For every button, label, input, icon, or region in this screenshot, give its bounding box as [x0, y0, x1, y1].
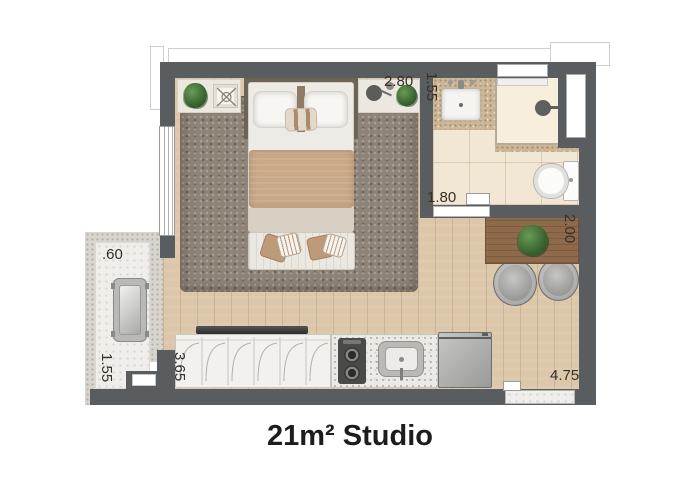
- bathroom-faucet-icon: [458, 80, 464, 89]
- dim-bathroom-width: 1.55: [423, 72, 439, 101]
- refrigerator-door-line: [439, 337, 491, 339]
- balcony-railing-top: [85, 232, 160, 242]
- lamp-icon: [366, 85, 382, 101]
- ac-unit-foot: [145, 283, 149, 289]
- refrigerator-icon: [438, 332, 492, 388]
- dim-balcony-length: 1.55: [98, 353, 114, 382]
- balcony-railing-right: [150, 242, 163, 362]
- window-glazing-line: [164, 127, 165, 235]
- wall-left-pier: [160, 236, 175, 258]
- dim-bedroom-width: 2.80: [384, 74, 413, 90]
- decor-tray-icon: [213, 84, 238, 108]
- toilet-tank-button: [569, 178, 573, 182]
- kitchen-cabinets: [175, 334, 331, 388]
- kitchen-faucet-icon: [400, 368, 403, 380]
- kitchen-sink: [378, 341, 424, 377]
- window-bathroom-top: [497, 64, 548, 77]
- wall-left-upper: [160, 62, 175, 126]
- window-glazing-line: [172, 127, 173, 235]
- window-bathroom-sill: [497, 78, 548, 86]
- dim-balcony-depth: .60: [102, 247, 123, 263]
- bathroom-sink-drain: [459, 103, 463, 107]
- ac-unit: [113, 278, 147, 342]
- bathroom-faucet-handle: [470, 80, 475, 85]
- bed-foot-sheet: [249, 208, 354, 232]
- kitchen-sink-drain: [399, 357, 404, 362]
- window-bedroom-west: [159, 126, 175, 236]
- stove-controls: [343, 340, 361, 344]
- door-bathroom-leaf: [466, 193, 490, 205]
- balcony-railing-left: [85, 232, 95, 405]
- ac-unit-foot: [111, 331, 115, 337]
- dim-apartment-length: 4.75: [550, 368, 579, 384]
- door-entrance-opening: [505, 390, 575, 404]
- stool: [493, 260, 537, 306]
- plan-title: 21m² Studio: [0, 420, 700, 453]
- refrigerator-handle: [482, 333, 488, 336]
- balcony-wall-opening: [132, 374, 156, 386]
- window-shower-nook: [566, 74, 586, 138]
- bed-accent-pillow: [285, 107, 318, 131]
- stove-burner: [344, 365, 360, 381]
- door-bathroom-opening: [433, 206, 490, 217]
- shower-drain-icon: [535, 100, 551, 116]
- ac-unit-foot: [111, 283, 115, 289]
- ac-unit-panel: [119, 285, 141, 335]
- bathroom-faucet-handle: [448, 80, 453, 85]
- tv-icon: [196, 326, 308, 334]
- stove-burner: [344, 347, 360, 363]
- door-entrance-leaf: [503, 381, 521, 391]
- bed-blanket: [249, 150, 354, 208]
- toilet-bowl: [533, 163, 569, 199]
- floor-plan: 2.80 1.55 1.80 2.00 .60 1.55 3.65 4.75 2…: [0, 0, 700, 500]
- dim-desk-wall-length: 2.00: [561, 214, 577, 243]
- ac-unit-foot: [145, 331, 149, 337]
- stove-icon: [338, 338, 366, 384]
- dim-bathroom-length: 1.80: [427, 190, 456, 206]
- dim-kitchen-run: 3.65: [171, 352, 187, 381]
- window-glazing-line: [168, 127, 169, 235]
- stool: [538, 258, 579, 301]
